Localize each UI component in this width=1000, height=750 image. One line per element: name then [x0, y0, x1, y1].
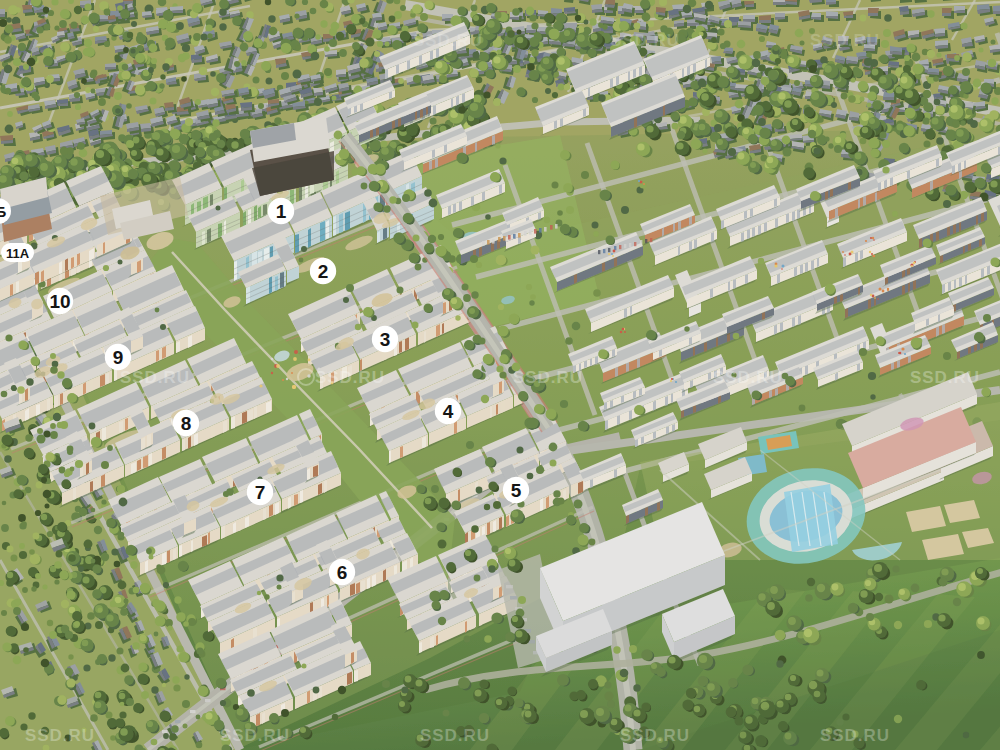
- svg-text:Б: Б: [0, 203, 7, 220]
- svg-text:SSD.RU: SSD.RU: [810, 31, 880, 50]
- svg-text:7: 7: [255, 482, 266, 503]
- svg-text:SSD.RU: SSD.RU: [120, 368, 190, 387]
- svg-text:1: 1: [276, 201, 287, 222]
- svg-text:SSD.RU: SSD.RU: [620, 726, 690, 745]
- svg-text:2: 2: [318, 261, 329, 282]
- svg-text:3: 3: [380, 329, 391, 350]
- svg-text:8: 8: [181, 413, 192, 434]
- svg-text:10: 10: [49, 291, 70, 312]
- svg-text:SSD.RU: SSD.RU: [513, 368, 583, 387]
- svg-text:SSD.RU: SSD.RU: [713, 368, 783, 387]
- svg-text:9: 9: [113, 347, 124, 368]
- svg-text:11А: 11А: [6, 246, 30, 261]
- svg-text:6: 6: [337, 562, 348, 583]
- svg-text:4: 4: [443, 401, 454, 422]
- svg-text:SSD.RU: SSD.RU: [315, 368, 385, 387]
- svg-text:SSD.RU: SSD.RU: [910, 368, 980, 387]
- svg-text:SSD.RU: SSD.RU: [820, 726, 890, 745]
- svg-text:SSD.RU: SSD.RU: [420, 726, 490, 745]
- svg-text:SSD.RU: SSD.RU: [25, 726, 95, 745]
- svg-text:SSD.RU: SSD.RU: [413, 31, 483, 50]
- svg-text:SSD.RU: SSD.RU: [220, 726, 290, 745]
- svg-text:5: 5: [511, 480, 522, 501]
- svg-text:SSD.RU: SSD.RU: [610, 31, 680, 50]
